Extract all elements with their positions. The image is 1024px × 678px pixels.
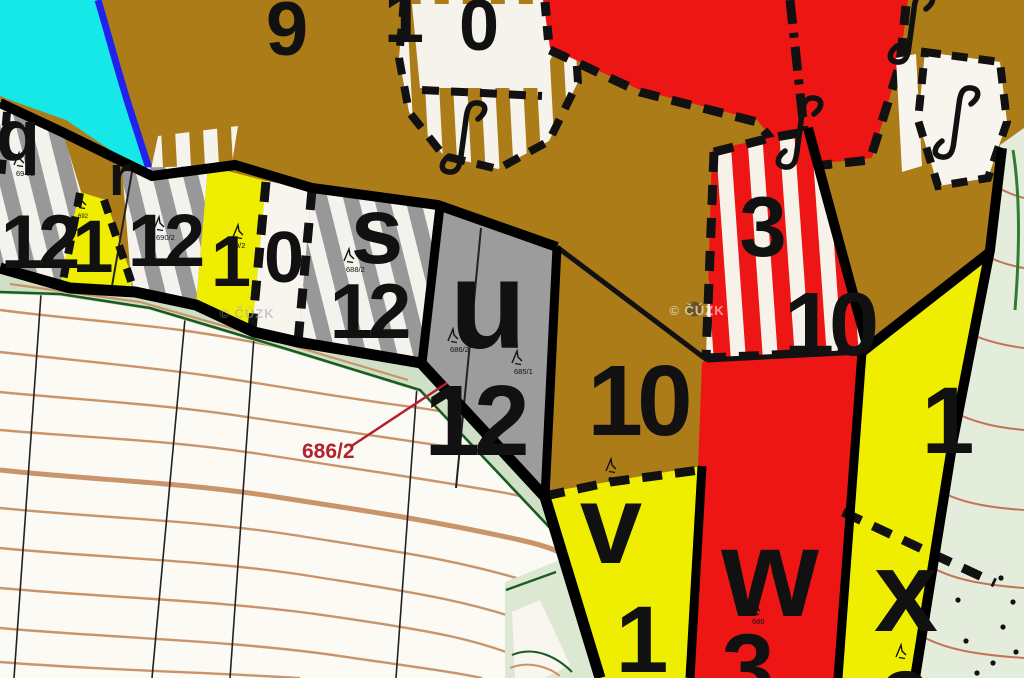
stand-number-3-striped: 3 [739,180,786,275]
stand-number-0-top: 0 [459,0,499,66]
stand-number-12-q: 12 [1,200,78,285]
map-viewport[interactable]: 694/2692690/29/2688/2686/2685/1683680 91… [0,0,1024,678]
stand-number-12-u: 12 [424,365,526,477]
cadastral-map-canvas[interactable]: 694/2692690/29/2688/2686/2685/1683680 91… [0,0,1024,678]
stand-number-9: 9 [266,0,308,72]
stand-number-12-s: 12 [330,267,409,355]
stand-number-10-brown: 10 [587,345,689,457]
stand-number-3-w: 3 [722,615,775,678]
stand-letter-x: x [874,528,938,656]
stand-letter-q: q [0,96,40,176]
stand-number-1-top: 1 [384,0,424,58]
stand-number-1-689: 1 [211,222,251,302]
dashed-enclave-topright[interactable] [896,52,1007,186]
stand-number-12-r: 12 [128,199,203,282]
stand-number-0-689: 0 [264,218,304,298]
stand-number-1-right: 1 [922,368,975,474]
stand-letter-u: u [450,236,526,375]
stand-number-9-x: 9 [880,652,933,678]
annotation-label: 686/2 [302,440,355,463]
watermark-cuzk-2: © ČÚZK [219,306,274,321]
watermark-cuzk-1: © ČÚZK [669,302,724,319]
stand-number-10-striped: 10 [784,275,876,375]
stand-number-1-wedge: 1 [72,205,113,288]
stand-number-1-v: 1 [616,587,669,678]
watermark-text: © ČÚZK [669,303,724,318]
watermark-text: © ČÚZK [219,306,274,321]
stand-letter-v: v [580,462,642,587]
